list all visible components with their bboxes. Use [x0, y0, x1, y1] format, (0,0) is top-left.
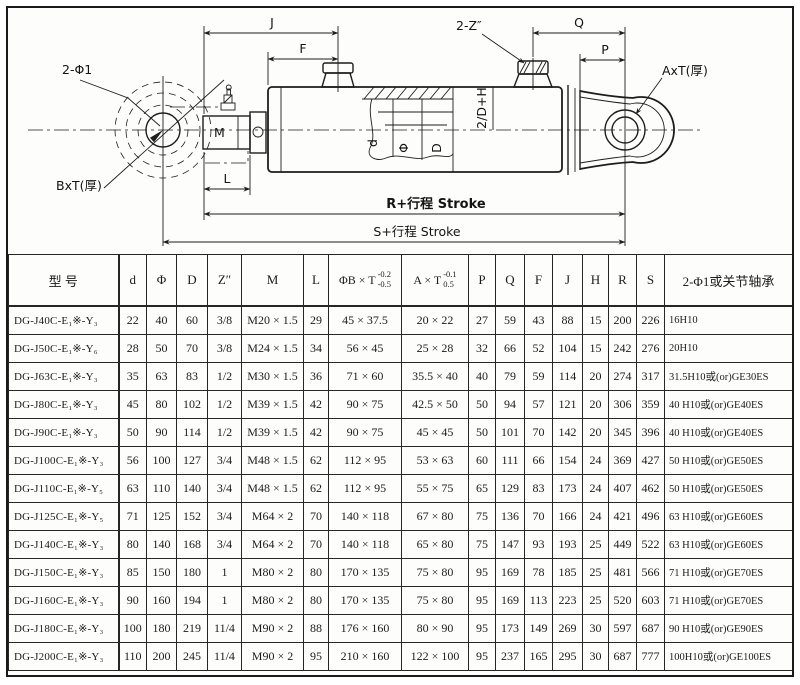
cell-model: DG-J150C-E₁※-Y₃: [9, 559, 119, 587]
cell-M: M39 × 1.5: [242, 419, 304, 447]
cell-L: 70: [304, 531, 329, 559]
cell-F: 52: [525, 335, 553, 363]
cell-Q: 59: [496, 306, 525, 335]
cell-d: 50: [119, 419, 147, 447]
cell-M: M20 × 1.5: [242, 306, 304, 335]
label-phi1-holes: 2-Φ1: [62, 62, 92, 77]
cell-F: 83: [525, 475, 553, 503]
cell-L: 62: [304, 447, 329, 475]
cell-d: 85: [119, 559, 147, 587]
cell-d: 90: [119, 587, 147, 615]
cell-bearing: 31.5H10或(or)GE30ES: [665, 363, 793, 391]
cell-F: 57: [525, 391, 553, 419]
cell-phi: 125: [147, 503, 177, 531]
cell-d: 35: [119, 363, 147, 391]
cell-H: 25: [583, 587, 609, 615]
cell-L: 34: [304, 335, 329, 363]
cell-J: 269: [553, 615, 583, 643]
cell-model: DG-J125C-E₁※-Y₅: [9, 503, 119, 531]
cell-Z: 3/4: [208, 503, 242, 531]
col-label: ΦB × T: [339, 273, 376, 288]
cell-d: 22: [119, 306, 147, 335]
cell-phiBxT: 112 × 95: [329, 475, 402, 503]
cell-bearing: 63 H10或(or)GE60ES: [665, 503, 793, 531]
cell-F: 149: [525, 615, 553, 643]
tolerance-stack: -0.1 0.5: [443, 270, 456, 290]
cell-Z: 1: [208, 559, 242, 587]
cell-d: 28: [119, 335, 147, 363]
cell-H: 25: [583, 531, 609, 559]
col-header-Z: Z″: [208, 255, 242, 307]
dim-label-f: F: [299, 41, 306, 56]
cell-AxT: 75 × 80: [402, 587, 469, 615]
cell-phi: 80: [147, 391, 177, 419]
cell-model: DG-J140C-E₁※-Y₃: [9, 531, 119, 559]
cell-Z: 3/4: [208, 475, 242, 503]
cell-d: 100: [119, 615, 147, 643]
cell-Q: 147: [496, 531, 525, 559]
col-header-model: 型 号: [9, 255, 119, 307]
cylinder-drawing: J F 2-Z″ Q P AxT(厚) 2-Φ1 BxT(厚) M L R+行程…: [8, 8, 792, 254]
cell-S: 317: [637, 363, 665, 391]
cell-S: 359: [637, 391, 665, 419]
cell-P: 95: [469, 587, 496, 615]
cell-P: 65: [469, 475, 496, 503]
cell-D: 60: [177, 306, 208, 335]
cell-M: M80 × 2: [242, 587, 304, 615]
cell-bearing: 40 H10或(or)GE40ES: [665, 391, 793, 419]
cell-F: 59: [525, 363, 553, 391]
cell-M: M24 × 1.5: [242, 335, 304, 363]
cell-R: 687: [609, 643, 637, 671]
cell-bearing: 71 H10或(or)GE70ES: [665, 559, 793, 587]
col-header-Q: Q: [496, 255, 525, 307]
cell-bearing: 50 H10或(or)GE50ES: [665, 447, 793, 475]
cell-AxT: 65 × 80: [402, 531, 469, 559]
cell-F: 93: [525, 531, 553, 559]
cell-F: 113: [525, 587, 553, 615]
col-header-phibxt: ΦB × T -0.2 -0.5: [329, 255, 402, 307]
cell-S: 496: [637, 503, 665, 531]
datasheet-page: J F 2-Z″ Q P AxT(厚) 2-Φ1 BxT(厚) M L R+行程…: [6, 6, 794, 677]
cell-P: 40: [469, 363, 496, 391]
cell-D: 168: [177, 531, 208, 559]
cell-bearing: 100H10或(or)GE100ES: [665, 643, 793, 671]
label-axt: AxT(厚): [662, 63, 708, 78]
portz-leader: [482, 34, 524, 63]
table-row: DG-J90C-E₁※-Y₃50901141/2M39 × 1.54290 × …: [9, 419, 793, 447]
cell-Q: 94: [496, 391, 525, 419]
cell-S: 687: [637, 615, 665, 643]
cell-Z: 1/2: [208, 419, 242, 447]
cell-D: 114: [177, 419, 208, 447]
cell-L: 42: [304, 391, 329, 419]
cell-phi: 110: [147, 475, 177, 503]
cell-Z: 11/4: [208, 615, 242, 643]
cell-J: 104: [553, 335, 583, 363]
col-header-M: M: [242, 255, 304, 307]
label-thread-m: M: [214, 125, 225, 140]
cell-Q: 66: [496, 335, 525, 363]
cell-phiBxT: 210 × 160: [329, 643, 402, 671]
cell-S: 777: [637, 643, 665, 671]
table-row: DG-J125C-E₁※-Y₅711251523/4M64 × 270140 ×…: [9, 503, 793, 531]
cell-model: DG-J40C-E₁※-Y₃: [9, 306, 119, 335]
cell-H: 20: [583, 363, 609, 391]
cell-AxT: 45 × 45: [402, 419, 469, 447]
cell-J: 114: [553, 363, 583, 391]
cell-P: 95: [469, 559, 496, 587]
cell-R: 421: [609, 503, 637, 531]
cell-M: M48 × 1.5: [242, 447, 304, 475]
cell-H: 30: [583, 615, 609, 643]
label-2dh: 2/D+H: [474, 87, 489, 129]
cell-phiBxT: 90 × 75: [329, 419, 402, 447]
col-header-S: S: [637, 255, 665, 307]
cell-M: M48 × 1.5: [242, 475, 304, 503]
cell-bearing: 90 H10或(or)GE90ES: [665, 615, 793, 643]
cell-phiBxT: 176 × 160: [329, 615, 402, 643]
cell-R: 449: [609, 531, 637, 559]
cylinder-body: [268, 87, 562, 172]
cell-phiBxT: 170 × 135: [329, 559, 402, 587]
cell-model: DG-J160C-E₁※-Y₃: [9, 587, 119, 615]
cell-AxT: 20 × 22: [402, 306, 469, 335]
cell-L: 88: [304, 615, 329, 643]
cell-F: 78: [525, 559, 553, 587]
cell-H: 25: [583, 559, 609, 587]
tolerance-stack: -0.2 -0.5: [378, 270, 391, 290]
cell-D: 194: [177, 587, 208, 615]
cell-F: 165: [525, 643, 553, 671]
cell-bearing: 20H10: [665, 335, 793, 363]
cell-model: DG-J100C-E₁※-Y₃: [9, 447, 119, 475]
cell-M: M90 × 2: [242, 643, 304, 671]
cell-d: 110: [119, 643, 147, 671]
cell-Z: 3/4: [208, 447, 242, 475]
cell-R: 407: [609, 475, 637, 503]
cell-model: DG-J63C-E₁※-Y₃: [9, 363, 119, 391]
col-header-F: F: [525, 255, 553, 307]
col-header-d: d: [119, 255, 147, 307]
cell-D: 70: [177, 335, 208, 363]
col-header-R: R: [609, 255, 637, 307]
table-row: DG-J200C-E₁※-Y₃11020024511/4M90 × 295210…: [9, 643, 793, 671]
cell-phiBxT: 140 × 118: [329, 503, 402, 531]
spec-table-header: 型 号 d Φ D Z″ M L ΦB × T -0.2 -0.5: [9, 255, 793, 307]
rod-nut-bolt: [253, 127, 263, 137]
col-header-H: H: [583, 255, 609, 307]
label-bore-D: D: [429, 143, 444, 153]
col-label: A × T: [413, 273, 441, 288]
cell-D: 152: [177, 503, 208, 531]
cell-M: M30 × 1.5: [242, 363, 304, 391]
cell-Q: 237: [496, 643, 525, 671]
cell-J: 223: [553, 587, 583, 615]
col-header-axt: A × T -0.1 0.5: [402, 255, 469, 307]
cell-phi: 90: [147, 419, 177, 447]
cell-S: 427: [637, 447, 665, 475]
cell-J: 88: [553, 306, 583, 335]
cell-F: 43: [525, 306, 553, 335]
cell-Z: 11/4: [208, 643, 242, 671]
cell-Q: 101: [496, 419, 525, 447]
cell-bearing: 16H10: [665, 306, 793, 335]
dim-label-p: P: [601, 42, 609, 57]
cell-L: 42: [304, 419, 329, 447]
cell-Q: 136: [496, 503, 525, 531]
cell-R: 369: [609, 447, 637, 475]
cell-AxT: 80 × 90: [402, 615, 469, 643]
label-ports-z: 2-Z″: [456, 18, 482, 33]
table-row: DG-J180C-E₁※-Y₃10018021911/4M90 × 288176…: [9, 615, 793, 643]
cell-Z: 1/2: [208, 391, 242, 419]
cell-D: 127: [177, 447, 208, 475]
cell-R: 520: [609, 587, 637, 615]
cell-M: M90 × 2: [242, 615, 304, 643]
cell-D: 83: [177, 363, 208, 391]
cell-phi: 140: [147, 531, 177, 559]
cell-L: 62: [304, 475, 329, 503]
cell-AxT: 35.5 × 40: [402, 363, 469, 391]
cell-S: 566: [637, 559, 665, 587]
cell-Q: 79: [496, 363, 525, 391]
cell-phi: 63: [147, 363, 177, 391]
cell-Z: 1/2: [208, 363, 242, 391]
cell-P: 32: [469, 335, 496, 363]
cell-phi: 160: [147, 587, 177, 615]
spec-table-body: DG-J40C-E₁※-Y₃2240603/8M20 × 1.52945 × 3…: [9, 306, 793, 671]
cell-P: 75: [469, 531, 496, 559]
cell-H: 24: [583, 503, 609, 531]
drawing-geometry: [28, 26, 702, 246]
table-row: DG-J140C-E₁※-Y₃801401683/4M64 × 270140 ×…: [9, 531, 793, 559]
cell-phi: 150: [147, 559, 177, 587]
cell-H: 15: [583, 335, 609, 363]
dim-label-s-stroke: S+行程 Stroke: [373, 224, 461, 239]
dim-label-l: L: [224, 171, 231, 186]
cell-R: 306: [609, 391, 637, 419]
cell-L: 80: [304, 559, 329, 587]
cell-AxT: 53 × 63: [402, 447, 469, 475]
cell-Q: 111: [496, 447, 525, 475]
cell-phiBxT: 140 × 118: [329, 531, 402, 559]
cell-S: 396: [637, 419, 665, 447]
cell-J: 193: [553, 531, 583, 559]
cell-F: 70: [525, 503, 553, 531]
cell-phi: 40: [147, 306, 177, 335]
cell-phiBxT: 90 × 75: [329, 391, 402, 419]
cell-J: 185: [553, 559, 583, 587]
cell-P: 50: [469, 419, 496, 447]
cell-M: M64 × 2: [242, 531, 304, 559]
cell-J: 166: [553, 503, 583, 531]
table-row: DG-J100C-E₁※-Y₃561001273/4M48 × 1.562112…: [9, 447, 793, 475]
cell-M: M64 × 2: [242, 503, 304, 531]
cell-S: 226: [637, 306, 665, 335]
cell-L: 29: [304, 306, 329, 335]
table-row: DG-J50C-E₁※-Y₆2850703/8M24 × 1.53456 × 4…: [9, 335, 793, 363]
cell-H: 30: [583, 643, 609, 671]
col-header-bearing: 2-Φ1或关节轴承: [665, 255, 793, 307]
label-bxt: BxT(厚): [56, 178, 102, 193]
cell-J: 142: [553, 419, 583, 447]
cell-Q: 173: [496, 615, 525, 643]
cell-J: 295: [553, 643, 583, 671]
table-row: DG-J160C-E₁※-Y₃901601941M80 × 280170 × 1…: [9, 587, 793, 615]
cell-L: 36: [304, 363, 329, 391]
cell-F: 70: [525, 419, 553, 447]
clevis-inner-outline: [580, 97, 664, 163]
cell-model: DG-J80C-E₁※-Y₃: [9, 391, 119, 419]
cell-Q: 169: [496, 559, 525, 587]
cell-phi: 200: [147, 643, 177, 671]
cell-P: 75: [469, 503, 496, 531]
cell-phiBxT: 56 × 45: [329, 335, 402, 363]
col-header-D: D: [177, 255, 208, 307]
axt-leader: [636, 78, 662, 114]
col-header-L: L: [304, 255, 329, 307]
grease-fitting-base: [221, 103, 235, 110]
cell-d: 63: [119, 475, 147, 503]
cell-S: 462: [637, 475, 665, 503]
cell-phi: 180: [147, 615, 177, 643]
table-row: DG-J40C-E₁※-Y₃2240603/8M20 × 1.52945 × 3…: [9, 306, 793, 335]
cell-H: 20: [583, 419, 609, 447]
cell-P: 95: [469, 615, 496, 643]
cell-phi: 100: [147, 447, 177, 475]
cell-AxT: 75 × 80: [402, 559, 469, 587]
cell-P: 50: [469, 391, 496, 419]
label-bore-phi: Φ: [396, 143, 411, 153]
cell-phiBxT: 71 × 60: [329, 363, 402, 391]
cell-AxT: 122 × 100: [402, 643, 469, 671]
cell-H: 15: [583, 306, 609, 335]
phantom-elbow: [205, 151, 248, 163]
cell-L: 70: [304, 503, 329, 531]
cell-model: DG-J110C-E₁※-Y₅: [9, 475, 119, 503]
cell-D: 245: [177, 643, 208, 671]
dim-label-j: J: [269, 15, 274, 30]
cell-model: DG-J50C-E₁※-Y₆: [9, 335, 119, 363]
cell-Z: 3/4: [208, 531, 242, 559]
cell-R: 481: [609, 559, 637, 587]
cell-model: DG-J180C-E₁※-Y₃: [9, 615, 119, 643]
rod-nut: [250, 112, 266, 153]
cell-AxT: 42.5 × 50: [402, 391, 469, 419]
cell-Z: 1: [208, 587, 242, 615]
dim-label-r-stroke: R+行程 Stroke: [386, 196, 486, 212]
table-row: DG-J80C-E₁※-Y₃45801021/2M39 × 1.54290 × …: [9, 391, 793, 419]
cell-F: 66: [525, 447, 553, 475]
cell-phiBxT: 112 × 95: [329, 447, 402, 475]
cell-S: 276: [637, 335, 665, 363]
cell-Z: 3/8: [208, 335, 242, 363]
cell-J: 173: [553, 475, 583, 503]
cell-d: 56: [119, 447, 147, 475]
cell-P: 27: [469, 306, 496, 335]
cell-J: 154: [553, 447, 583, 475]
cell-AxT: 55 × 75: [402, 475, 469, 503]
cell-d: 80: [119, 531, 147, 559]
cell-R: 597: [609, 615, 637, 643]
phi1-leader: [80, 80, 160, 126]
cell-P: 95: [469, 643, 496, 671]
cell-L: 80: [304, 587, 329, 615]
cell-R: 274: [609, 363, 637, 391]
cell-H: 20: [583, 391, 609, 419]
cell-R: 200: [609, 306, 637, 335]
cell-model: DG-J200C-E₁※-Y₃: [9, 643, 119, 671]
cell-AxT: 67 × 80: [402, 503, 469, 531]
cell-D: 102: [177, 391, 208, 419]
table-row: DG-J63C-E₁※-Y₃3563831/2M30 × 1.53671 × 6…: [9, 363, 793, 391]
cell-J: 121: [553, 391, 583, 419]
table-row: DG-J110C-E₁※-Y₅631101403/4M48 × 1.562112…: [9, 475, 793, 503]
cell-M: M39 × 1.5: [242, 391, 304, 419]
col-header-J: J: [553, 255, 583, 307]
cell-R: 345: [609, 419, 637, 447]
cell-S: 522: [637, 531, 665, 559]
table-row: DG-J150C-E₁※-Y₃851501801M80 × 280170 × 1…: [9, 559, 793, 587]
cell-M: M80 × 2: [242, 559, 304, 587]
cell-bearing: 40 H10或(or)GE40ES: [665, 419, 793, 447]
cell-Q: 129: [496, 475, 525, 503]
tol-bottom: 0.5: [443, 280, 456, 290]
cell-D: 140: [177, 475, 208, 503]
cell-Q: 169: [496, 587, 525, 615]
cell-D: 219: [177, 615, 208, 643]
cell-bearing: 63 H10或(or)GE60ES: [665, 531, 793, 559]
cell-phiBxT: 170 × 135: [329, 587, 402, 615]
cell-d: 71: [119, 503, 147, 531]
cell-L: 95: [304, 643, 329, 671]
tol-bottom: -0.5: [378, 280, 391, 290]
col-header-phi: Φ: [147, 255, 177, 307]
dim-label-q: Q: [574, 15, 584, 30]
col-header-P: P: [469, 255, 496, 307]
cell-d: 45: [119, 391, 147, 419]
cell-P: 60: [469, 447, 496, 475]
cell-H: 24: [583, 475, 609, 503]
spec-table: 型 号 d Φ D Z″ M L ΦB × T -0.2 -0.5: [8, 254, 793, 671]
cell-S: 603: [637, 587, 665, 615]
cell-bearing: 50 H10或(or)GE50ES: [665, 475, 793, 503]
cell-Z: 3/8: [208, 306, 242, 335]
cell-H: 24: [583, 447, 609, 475]
cell-D: 180: [177, 559, 208, 587]
cell-phi: 50: [147, 335, 177, 363]
cell-R: 242: [609, 335, 637, 363]
cell-model: DG-J90C-E₁※-Y₃: [9, 419, 119, 447]
cell-bearing: 71 H10或(or)GE70ES: [665, 587, 793, 615]
cell-phiBxT: 45 × 37.5: [329, 306, 402, 335]
label-bore-d: d: [365, 139, 380, 147]
cell-AxT: 25 × 28: [402, 335, 469, 363]
